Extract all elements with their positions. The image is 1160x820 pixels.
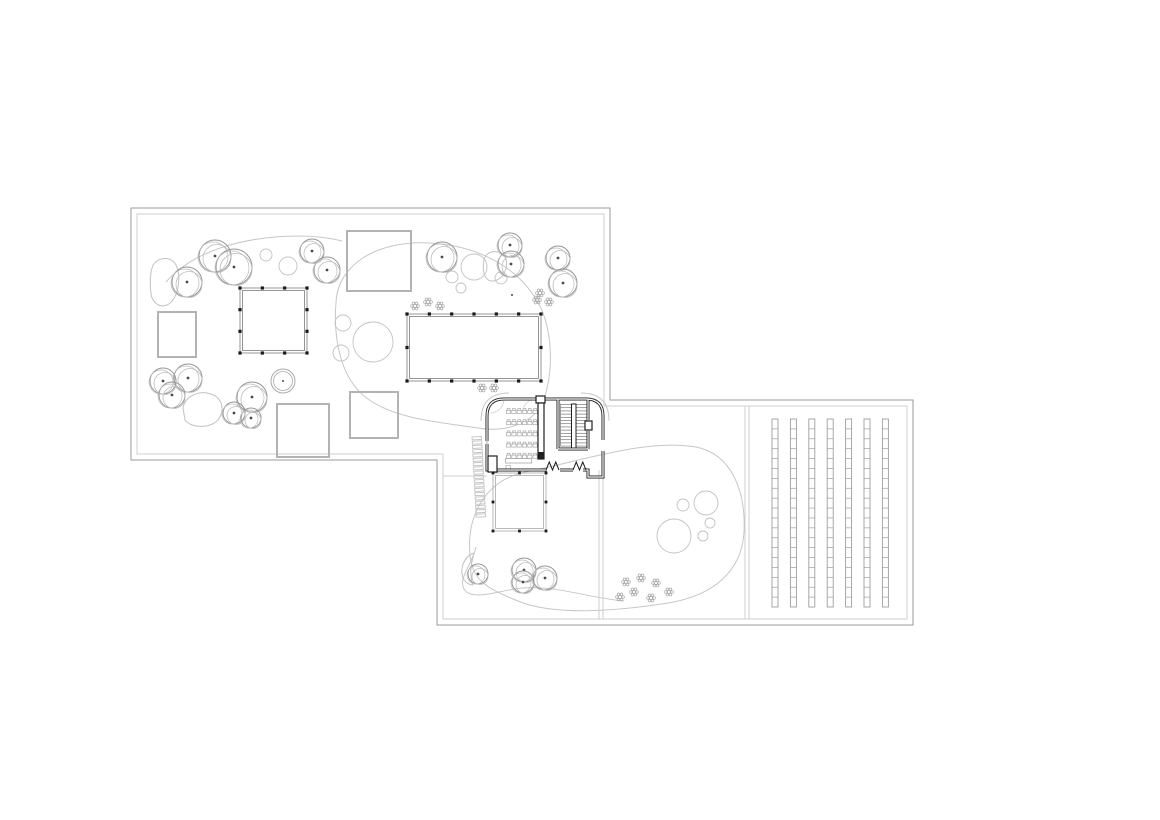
site-plan-drawing	[0, 0, 1160, 820]
column-dot	[518, 530, 521, 533]
classroom-chair	[512, 455, 516, 458]
flower-petal	[536, 292, 539, 295]
tree-trunk-dot	[311, 250, 314, 253]
classroom-chair	[507, 410, 511, 413]
classroom-chair	[517, 422, 521, 425]
flower-petal	[412, 302, 415, 305]
flower-petal	[647, 597, 650, 600]
classroom-chair	[512, 444, 516, 447]
chair-backrest	[534, 442, 537, 444]
column-dot	[428, 312, 431, 315]
classroom-chair	[522, 444, 526, 447]
tree	[313, 257, 340, 284]
tree	[511, 571, 534, 594]
column-dot	[518, 472, 521, 475]
pavilion-square	[347, 231, 411, 291]
chair-backrest	[513, 409, 516, 411]
flower-petal	[537, 289, 540, 292]
tree-canopy-offset	[171, 269, 199, 297]
trellis-rung	[474, 471, 484, 474]
flower-petal	[653, 579, 656, 582]
classroom-chair	[528, 410, 532, 413]
tree-trunk-dot	[187, 377, 190, 380]
garden-strip	[809, 419, 815, 607]
classroom-chair	[533, 433, 537, 436]
column-dot	[405, 346, 408, 349]
classroom-chair	[528, 455, 532, 458]
pavilions	[158, 231, 547, 532]
wall-pier	[536, 396, 545, 403]
tree-trunk-dot	[326, 269, 329, 272]
tree-trunk-dot	[522, 581, 525, 584]
flower-petal	[540, 289, 543, 292]
flower-petal	[616, 596, 619, 599]
tree-trunk-dot	[441, 256, 444, 259]
flower-petal	[617, 593, 620, 596]
flower-petal	[545, 301, 548, 304]
wall-pier	[488, 456, 497, 472]
flower-petal	[496, 387, 499, 390]
tree	[173, 364, 202, 393]
garden-strip	[864, 419, 870, 607]
tree-canopy-offset	[426, 244, 454, 272]
flower-petal	[415, 302, 418, 305]
wall-pier	[585, 421, 592, 430]
flower-petal	[549, 303, 552, 306]
flower-petal	[412, 307, 415, 310]
flower-petal	[428, 298, 431, 301]
flower-petal	[636, 591, 639, 594]
tree-canopy-offset	[431, 247, 457, 273]
canopy-arc	[581, 393, 609, 421]
tree-trunk-dot	[562, 282, 565, 285]
classroom-chair	[533, 455, 537, 458]
flower-symbol	[665, 588, 674, 596]
flower-petal	[437, 307, 440, 310]
survey-dot	[511, 294, 513, 296]
flower-symbol	[436, 302, 445, 310]
chair-backrest	[518, 431, 521, 433]
tree-canopy-offset	[198, 242, 228, 272]
trellis-rung	[473, 449, 483, 452]
trellis-rung	[476, 514, 486, 517]
garden-strip	[827, 419, 833, 607]
chair-backrest	[523, 453, 526, 455]
classroom-chair	[528, 422, 532, 425]
tree	[545, 246, 570, 271]
tree-canopy-offset	[553, 274, 577, 298]
tree-trunk-dot	[214, 255, 217, 258]
column-dot	[305, 308, 308, 311]
column-dot	[539, 312, 542, 315]
flower-petal	[551, 301, 554, 304]
flower-symbol	[647, 594, 656, 602]
chair-backrest	[518, 442, 521, 444]
flower-symbol	[536, 289, 545, 297]
flower-petal	[542, 292, 545, 295]
tree-canopy-offset	[173, 366, 199, 392]
shrub-circle	[456, 283, 466, 293]
flower-petal	[631, 593, 634, 596]
tree	[497, 233, 522, 258]
flower-symbol	[424, 298, 433, 306]
flower-petal	[424, 301, 427, 304]
classroom-chair	[507, 444, 511, 447]
floor-plan	[0, 0, 1160, 820]
classroom-chair	[517, 455, 521, 458]
colonnade-pavilion	[238, 286, 308, 354]
chair-backrest	[518, 409, 521, 411]
tree-canopy-offset	[176, 272, 202, 298]
column-dot	[305, 330, 308, 333]
column-dot	[238, 308, 241, 311]
classroom-chair	[507, 422, 511, 425]
chair-backrest	[523, 431, 526, 433]
classroom-chair	[528, 433, 532, 436]
tree	[426, 242, 457, 273]
flower-petal	[436, 305, 439, 308]
flower-petal	[653, 584, 656, 587]
flower-petal	[638, 579, 641, 582]
tree-trunk-dot	[250, 417, 253, 420]
flower-petal	[671, 591, 674, 594]
flower-petal	[479, 389, 482, 392]
classroom-chair	[522, 422, 526, 425]
tree-trunk-dot	[251, 396, 254, 399]
pavilion-square	[158, 312, 196, 357]
column-dot	[545, 472, 548, 475]
classroom-chair	[522, 455, 526, 458]
column-dot	[517, 312, 520, 315]
column-dot	[495, 312, 498, 315]
flower-petal	[626, 583, 629, 586]
partition-wall	[538, 403, 544, 459]
classroom-chair	[533, 444, 537, 447]
shrub-circle	[698, 531, 708, 541]
tree-trunk-dot	[544, 577, 547, 580]
planter-center-dot	[282, 380, 284, 382]
pavilion-square	[350, 392, 398, 438]
planting	[149, 233, 718, 602]
flower-petal	[666, 588, 669, 591]
chair-backrest	[513, 431, 516, 433]
tree	[198, 240, 231, 273]
column-dot	[305, 351, 308, 354]
trellis-rung	[475, 492, 485, 495]
chair-backrest	[513, 442, 516, 444]
flower-petal	[623, 583, 626, 586]
tree-canopy-offset	[227, 407, 245, 425]
chair-backrest	[513, 453, 516, 455]
classroom-chair	[528, 444, 532, 447]
flower-petal	[479, 384, 482, 387]
flower-symbol	[616, 593, 625, 601]
tree	[467, 564, 488, 585]
shrub-circle	[335, 315, 351, 331]
column-dot	[495, 379, 498, 382]
chair-backrest	[507, 453, 510, 455]
tree-canopy-offset	[472, 569, 488, 585]
column-dot	[238, 351, 241, 354]
flower-petal	[630, 591, 633, 594]
chair-backrest	[507, 442, 510, 444]
shrub-circle	[446, 271, 458, 283]
partition-wall-solid	[538, 452, 544, 459]
planting-blob	[183, 393, 222, 427]
trellis-rungs	[472, 437, 486, 518]
meadow-outline	[335, 243, 550, 429]
tree-trunk-dot	[233, 412, 236, 415]
flower-petal	[631, 588, 634, 591]
trellis-rung	[476, 510, 486, 513]
column-dot	[492, 501, 495, 504]
flower-petal	[491, 384, 494, 387]
flower-petal	[417, 305, 420, 308]
flower-petal	[651, 599, 654, 602]
tree	[171, 267, 202, 298]
pavilion-square	[277, 404, 329, 457]
flower-petal	[620, 593, 623, 596]
shrub-circle	[694, 491, 718, 515]
flower-petal	[491, 389, 494, 392]
stair-divider-wall	[572, 404, 577, 448]
flower-petal	[482, 389, 485, 392]
chair-backrest	[528, 409, 531, 411]
trellis-rung	[474, 475, 484, 478]
trellis-rung	[474, 467, 484, 470]
flower-petal	[442, 305, 445, 308]
classroom-chair	[522, 433, 526, 436]
chair-backrest	[534, 409, 537, 411]
flower-petal	[669, 588, 672, 591]
column-dot	[238, 286, 241, 289]
flower-petal	[658, 582, 661, 585]
chair-backrest	[507, 409, 510, 411]
flower-petal	[440, 307, 443, 310]
chair-backrest	[513, 420, 516, 422]
flower-petal	[641, 574, 644, 577]
path-curve	[463, 547, 624, 601]
flower-petal	[651, 594, 654, 597]
chair-backrest	[518, 453, 521, 455]
tree-canopy-offset	[548, 271, 574, 297]
column-dot	[492, 530, 495, 533]
flower-petal	[546, 303, 549, 306]
column-dot	[405, 312, 408, 315]
column-dot	[472, 379, 475, 382]
shrub-circle	[657, 519, 691, 553]
chair-backrest	[528, 431, 531, 433]
classroom-chair	[517, 444, 521, 447]
tree-trunk-dot	[477, 573, 480, 576]
shrub-circle	[279, 257, 297, 275]
column-dot	[405, 379, 408, 382]
flower-petal	[634, 593, 637, 596]
colonnade-pavilion	[492, 472, 548, 533]
flower-petal	[428, 303, 431, 306]
garden-strip	[790, 419, 796, 607]
trellis-rung	[472, 441, 482, 444]
shrub-circle	[705, 518, 715, 528]
flower-petal	[648, 594, 651, 597]
flower-petal	[425, 298, 428, 301]
classroom-chair	[507, 455, 511, 458]
flower-symbol	[545, 298, 554, 306]
tree	[215, 249, 252, 286]
shrub-circle	[353, 322, 393, 362]
trellis-stair	[472, 437, 486, 518]
trellis-rung	[473, 454, 483, 457]
tree	[548, 269, 577, 298]
garden-strip	[882, 419, 888, 607]
tree-canopy-offset	[516, 576, 534, 594]
flower-petal	[652, 582, 655, 585]
tree	[149, 368, 176, 395]
chair-backrest	[534, 420, 537, 422]
column-dot	[428, 379, 431, 382]
column-dot	[539, 346, 542, 349]
classroom-chair	[533, 422, 537, 425]
chair-backrest	[518, 420, 521, 422]
chair-backrest	[523, 442, 526, 444]
flower-petal	[482, 384, 485, 387]
garden-strip	[772, 419, 778, 607]
column-dot	[450, 312, 453, 315]
flower-petal	[549, 298, 552, 301]
flower-petal	[622, 581, 625, 584]
flower-petal	[666, 593, 669, 596]
column-dot	[545, 501, 548, 504]
flower-petal	[637, 577, 640, 580]
column-dot	[472, 312, 475, 315]
chair-backrest	[523, 420, 526, 422]
trellis-rung	[472, 445, 482, 448]
chair-backrest	[523, 409, 526, 411]
chair-backrest	[528, 453, 531, 455]
flower-petal	[494, 389, 497, 392]
tree	[532, 566, 557, 591]
colonnade-pavilion	[405, 312, 542, 382]
shrub-circle	[677, 499, 689, 511]
trellis-rung	[473, 462, 483, 465]
landscape-paths	[150, 236, 744, 611]
flower-petal	[539, 299, 542, 302]
flower-petal	[425, 303, 428, 306]
staircase	[561, 404, 588, 449]
flower-symbol	[478, 384, 487, 392]
flower-petal	[440, 302, 443, 305]
classroom-chair	[512, 410, 516, 413]
column-dot	[450, 379, 453, 382]
flower-petal	[665, 591, 668, 594]
classroom-chair	[517, 433, 521, 436]
tree-trunk-dot	[171, 394, 174, 397]
classroom-building	[481, 393, 609, 477]
chair-backrest	[534, 453, 537, 455]
column-dot	[545, 530, 548, 533]
column-dot	[283, 351, 286, 354]
chair-backrest	[507, 431, 510, 433]
flower-petal	[437, 302, 440, 305]
flower-petal	[634, 588, 637, 591]
flower-petal	[411, 305, 414, 308]
tree-trunk-dot	[162, 380, 165, 383]
flower-petal	[490, 387, 493, 390]
flower-symbol	[622, 578, 631, 586]
garden-strips	[772, 419, 888, 607]
flower-petal	[484, 387, 487, 390]
flower-petal	[648, 599, 651, 602]
tree-trunk-dot	[233, 266, 236, 269]
column-dot	[305, 286, 308, 289]
classroom-chair	[517, 410, 521, 413]
tree-trunk-dot	[186, 281, 189, 284]
flower-petal	[546, 298, 549, 301]
column-dot	[539, 379, 542, 382]
trellis-rung	[472, 437, 482, 440]
column-dot	[283, 286, 286, 289]
flower-petal	[669, 593, 672, 596]
flower-petal	[653, 597, 656, 600]
flower-petal	[638, 574, 641, 577]
tree-canopy-offset	[245, 413, 261, 429]
trellis-rung	[475, 501, 485, 504]
flower-petal	[430, 301, 433, 304]
flower-petal	[628, 581, 631, 584]
trellis-rung	[475, 488, 485, 491]
trellis-rung	[476, 505, 486, 508]
flower-petal	[656, 584, 659, 587]
trellis-rung	[474, 479, 484, 482]
flower-symbol	[490, 384, 499, 392]
flower-symbol	[411, 302, 420, 310]
tree-canopy-offset	[220, 254, 252, 286]
flower-symbol	[637, 574, 646, 582]
flower-symbol	[630, 588, 639, 596]
flower-petal	[626, 578, 629, 581]
column-dot	[517, 379, 520, 382]
flower-petal	[478, 387, 481, 390]
flower-petal	[534, 301, 537, 304]
planting-blob	[150, 259, 178, 306]
classroom-chair	[507, 433, 511, 436]
shrub-circle	[260, 249, 272, 261]
classroom-chair	[522, 410, 526, 413]
classroom-chair	[533, 410, 537, 413]
teacher-desk	[506, 459, 532, 464]
flower-petal	[533, 299, 536, 302]
flower-petal	[494, 384, 497, 387]
chair-backrest	[534, 431, 537, 433]
flower-petal	[415, 307, 418, 310]
trellis-rung	[473, 458, 483, 461]
classroom-chair	[512, 433, 516, 436]
flower-petal	[643, 577, 646, 580]
flower-symbol	[652, 579, 661, 587]
trellis-rung	[474, 484, 484, 487]
column-dot	[261, 286, 264, 289]
canopy-arc	[481, 393, 509, 421]
tree	[158, 382, 185, 409]
column-dot	[261, 351, 264, 354]
column-dot	[238, 330, 241, 333]
garden-strip	[846, 419, 852, 607]
tree-trunk-dot	[557, 257, 560, 260]
chair-backrest	[507, 420, 510, 422]
flower-petal	[622, 596, 625, 599]
flower-petal	[656, 579, 659, 582]
flower-petal	[623, 578, 626, 581]
